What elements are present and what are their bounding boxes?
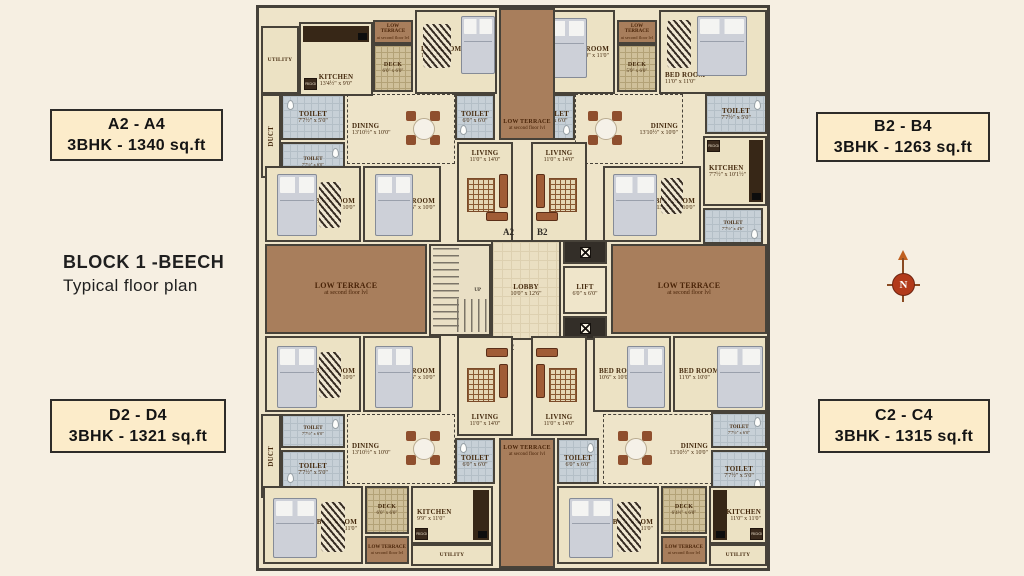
lift-shaft-top — [563, 240, 607, 264]
sofa-icon — [486, 212, 508, 221]
room-dim: 6'0" x 6'0" — [377, 511, 398, 517]
unit-spec-b: 3BHK - 1263 sq.ft — [834, 138, 972, 158]
room-name: DINING — [352, 122, 379, 130]
room-name: DECK — [628, 62, 646, 69]
north-compass: N — [886, 250, 922, 308]
room-a-toilet3: TOILET6'0" x 6'0" — [455, 94, 495, 140]
room-a-bed2: BED ROOM13'0" x 10'0" — [265, 166, 361, 242]
room-dim: 6'0" x 6'0" — [565, 462, 590, 469]
room-c-bed1: BED ROOM10'6" x 10'0" — [593, 336, 671, 412]
rug-icon — [319, 182, 341, 228]
room-dim: 11'0" x 14'0" — [544, 157, 575, 164]
room-name: LIFT — [576, 283, 593, 291]
fridge-icon: FRIDGE — [707, 140, 720, 152]
unit-range-b: B2 - B4 — [874, 117, 932, 137]
terrace-d-small: LOW TERRACEat second floor lvl — [365, 536, 409, 564]
unit-spec-c: 3BHK - 1315 sq.ft — [835, 427, 973, 447]
kitchen-counter-icon — [713, 490, 727, 540]
room-name: TOILET — [299, 462, 327, 470]
toilet-fixture-icon — [287, 100, 294, 110]
lobby: LOBBY10'0" x 12'6" — [491, 240, 561, 340]
kitchen-counter-icon — [473, 490, 489, 540]
sofa-icon — [499, 174, 508, 208]
rug-icon — [423, 24, 451, 68]
rug-icon — [467, 368, 495, 402]
room-d-toilet2: TOILET7'7½" x 5'0" — [281, 450, 345, 488]
terrace-name: LOW TERRACE — [658, 281, 721, 290]
lift-shaft-x-icon — [580, 323, 591, 334]
toilet-fixture-icon — [563, 125, 570, 135]
sofa-icon — [536, 212, 558, 221]
room-b-kitchen: FRIDGE KITCHEN7'7½" x 10'1½" — [703, 136, 767, 206]
bed-icon — [375, 174, 413, 236]
fridge-icon: FRIDGE — [304, 78, 317, 90]
stairs-icon: UP — [429, 244, 491, 336]
unit-range-d: D2 - D4 — [109, 406, 167, 426]
room-a-bed3: BED ROOM10'6" x 10'0" — [363, 166, 441, 242]
room-name: TOILET — [461, 110, 489, 118]
room-name: KITCHEN — [319, 73, 353, 81]
room-name: LIVING — [472, 413, 499, 421]
compass-n-label: N — [900, 279, 908, 291]
room-name: TOILET — [461, 454, 489, 462]
room-name: UTILITY — [268, 57, 293, 63]
terrace-sub: at second floor lvl — [667, 290, 711, 297]
room-name: BED ROOM — [679, 367, 719, 375]
terrace-b-small: LOW TERRACEat second floor lvl — [617, 20, 657, 44]
room-dim: 7'7½" x 5'0" — [724, 473, 754, 480]
room-name: DUCT — [267, 126, 275, 147]
room-name: TOILET — [722, 107, 750, 115]
room-c-utility: UTILITY — [709, 544, 767, 566]
toilet-fixture-icon — [460, 125, 467, 135]
unit-label-box-a: A2 - A4 3BHK - 1340 sq.ft — [50, 109, 223, 161]
room-b-toilet2: TOILET7'7½" x 5'0" — [705, 94, 767, 134]
terrace-name: LOW TERRACE — [503, 445, 551, 452]
bed-icon — [569, 498, 613, 558]
terrace-sub: at second floor lvl — [377, 35, 410, 40]
room-d-toilet1: TOILET7'7½" x 6'0" — [281, 414, 345, 448]
room-c-dining: DINING13'10½" x 10'0" — [603, 414, 713, 484]
block-title: BLOCK 1 -BEECH Typical floor plan — [63, 250, 224, 298]
room-dim: 7'7½" x 10'1½" — [709, 172, 746, 179]
room-name: KITCHEN — [417, 508, 451, 516]
room-name: DECK — [378, 504, 396, 511]
dining-set-icon — [406, 111, 442, 147]
lift-shaft-x-icon — [580, 247, 591, 258]
room-name: TOILET — [299, 110, 327, 118]
bed-icon — [277, 346, 317, 408]
room-d-dining: DINING13'10½" x 10'0" — [347, 414, 455, 484]
room-d-kitchen: FRIDGE KITCHEN9'9" x 11'0" — [411, 486, 493, 544]
terrace-sub: at second floor lvl — [668, 550, 701, 555]
room-dim: 11'0" x 14'0" — [544, 421, 575, 428]
sofa-icon — [536, 174, 545, 208]
floor-plan: UTILITY FRIDGE KITCHEN13'4½" x 9'0" LOW … — [256, 5, 770, 571]
room-c-toilet2: TOILET7'7½" x 6'0" — [711, 412, 767, 448]
toilet-fixture-icon — [332, 419, 339, 429]
toilet-fixture-icon — [754, 100, 761, 110]
room-dim: 7'7½" x 6'0" — [302, 431, 324, 436]
dining-set-icon — [618, 431, 654, 467]
lift: LIFT6'0" x 6'0" — [563, 266, 607, 314]
room-a-kitchen: FRIDGE KITCHEN13'4½" x 9'0" — [299, 22, 373, 96]
terrace-sub: at second floor lvl — [509, 452, 545, 458]
compass-circle: N — [892, 273, 915, 296]
room-dim: 13'10½" x 10'0" — [669, 450, 708, 457]
room-d-bed1: BED ROOM13'0" x 10'0" — [265, 336, 361, 412]
unit-spec-a: 3BHK - 1340 sq.ft — [67, 136, 205, 156]
toilet-fixture-icon — [332, 148, 339, 158]
room-b-toilet3: TOILET7'7½" x 4'6" — [703, 208, 763, 244]
room-dim: 6'0" x 6'0" — [383, 69, 404, 75]
room-dim: 13'10½" x 10'0" — [639, 130, 678, 137]
room-d-utility: UTILITY — [411, 544, 493, 566]
room-b-dining: DINING13'10½" x 10'0" — [575, 94, 683, 164]
sofa-icon — [536, 364, 545, 398]
room-d-deck: DECK6'0" x 6'0" — [365, 486, 409, 534]
terrace-bottom: LOW TERRACEat second floor lvl — [499, 438, 555, 568]
stairs-up-label: UP — [474, 288, 481, 293]
room-dim: 13'10½" x 10'0" — [352, 450, 391, 457]
room-dim: 6'0" x 6'0" — [462, 118, 487, 125]
rug-icon — [549, 178, 577, 212]
terrace-a-small: LOW TERRACEat second floor lvl — [373, 20, 413, 44]
terrace-sub: at second floor lvl — [324, 290, 368, 297]
sofa-icon — [499, 364, 508, 398]
terrace-sub: at second floor lvl — [509, 126, 545, 132]
room-dim: 7'7½" x 4'6" — [722, 226, 744, 231]
room-name: DECK — [675, 504, 693, 511]
room-a-dining: DINING13'10½" x 10'0" — [347, 94, 455, 164]
fridge-icon: FRIDGE — [415, 528, 428, 540]
floor-plan-page: A2 - A4 3BHK - 1340 sq.ft B2 - B4 3BHK -… — [0, 0, 1024, 576]
rug-icon — [549, 368, 577, 402]
room-dim: 11'0" x 10'0" — [679, 375, 710, 382]
bed-icon — [697, 16, 747, 76]
terrace-right: LOW TERRACEat second floor lvl — [611, 244, 767, 334]
room-name: DUCT — [267, 446, 275, 467]
room-b-deck: DECK5'9" x 6'0" — [617, 44, 657, 92]
bed-icon — [461, 16, 495, 74]
rug-icon — [467, 178, 495, 212]
terrace-sub: at second floor lvl — [621, 35, 654, 40]
room-c-toilet1: TOILET6'0" x 6'0" — [557, 438, 599, 484]
room-d-toilet3: TOILET6'0" x 6'0" — [455, 438, 495, 484]
room-dim: 13'4½" x 9'0" — [320, 81, 353, 88]
sofa-icon — [486, 348, 508, 357]
room-c-deck: DECK6'4½" x 6'0" — [661, 486, 707, 534]
room-dim: 6'4½" x 6'0" — [672, 511, 697, 517]
rug-icon — [661, 178, 683, 214]
toilet-fixture-icon — [287, 473, 294, 483]
block-title-line1: BLOCK 1 -BEECH — [63, 250, 224, 274]
terrace-name: LOW TERRACE — [619, 24, 655, 36]
toilet-fixture-icon — [751, 229, 758, 239]
room-dim: 7'7½" x 5'0" — [721, 115, 751, 122]
bed-icon — [627, 346, 665, 408]
room-name: DINING — [681, 442, 708, 450]
room-dim: 7'7½" x 6'0" — [728, 430, 750, 435]
unit-label-box-d: D2 - D4 3BHK - 1321 sq.ft — [50, 399, 226, 453]
rug-icon — [617, 502, 641, 552]
room-d-bed2: BED ROOM10'6" x 10'0" — [363, 336, 441, 412]
unit-range-c: C2 - C4 — [875, 406, 933, 426]
kitchen-counter-icon — [749, 140, 763, 202]
room-dim: 9'9" x 11'0" — [417, 516, 445, 523]
dining-set-icon — [588, 111, 624, 147]
room-dim: 10'6" x 10'0" — [599, 375, 630, 382]
terrace-top: LOW TERRACEat second floor lvl — [499, 8, 555, 140]
bed-icon — [273, 498, 317, 558]
room-c-bed3: BED ROOM13'0" x 11'0" — [557, 486, 659, 564]
room-dim: 7'7½" x 5'0" — [298, 470, 328, 477]
unit-label-box-c: C2 - C4 3BHK - 1315 sq.ft — [818, 399, 990, 453]
bed-icon — [375, 346, 413, 408]
terrace-name: LOW TERRACE — [375, 24, 411, 36]
terrace-c-small: LOW TERRACEat second floor lvl — [661, 536, 707, 564]
bed-icon — [613, 174, 657, 236]
dining-set-icon — [406, 431, 442, 467]
fridge-icon: FRIDGE — [750, 528, 763, 540]
kitchen-counter-icon — [303, 26, 369, 42]
room-name: DINING — [352, 442, 379, 450]
room-name: LIVING — [546, 149, 573, 157]
room-name: LOBBY — [513, 283, 539, 291]
sofa-icon — [536, 348, 558, 357]
terrace-name: LOW TERRACE — [503, 119, 551, 126]
room-d-living: LIVING11'0" x 14'0" — [457, 336, 513, 436]
room-a-utility: UTILITY — [261, 26, 299, 94]
room-dim: 11'0" x 14'0" — [470, 421, 501, 428]
room-dim: 5'9" x 6'0" — [627, 69, 648, 75]
room-b-bed2: BED ROOM11'0" x 11'0" — [659, 10, 767, 94]
room-dim: 7'7½" x 5'0" — [298, 118, 328, 125]
unit-label-box-b: B2 - B4 3BHK - 1263 sq.ft — [816, 112, 990, 162]
rug-icon — [319, 352, 341, 398]
room-name: LIVING — [546, 413, 573, 421]
room-b-bed3: BED ROOM13'10½" x 10'0" — [603, 166, 701, 242]
room-name: DECK — [384, 62, 402, 69]
room-name: DINING — [651, 122, 678, 130]
rug-icon — [321, 502, 345, 552]
room-name: LIVING — [472, 149, 499, 157]
room-dim: 6'0" x 6'0" — [462, 462, 487, 469]
room-c-bed2: BED ROOM11'0" x 10'0" — [673, 336, 767, 412]
unit-marker-a2: A2 — [503, 227, 514, 237]
room-name: KITCHEN — [727, 508, 761, 516]
room-dim: 6'0" x 6'0" — [572, 291, 597, 298]
room-dim: 13'10½" x 10'0" — [352, 130, 391, 137]
room-a-deck: DECK6'0" x 6'0" — [373, 44, 413, 92]
room-dim: 11'0" x 14'0" — [470, 157, 501, 164]
unit-spec-d: 3BHK - 1321 sq.ft — [69, 427, 207, 447]
bed-icon — [717, 346, 763, 408]
block-title-line2: Typical floor plan — [63, 274, 224, 298]
room-c-living: LIVING11'0" x 14'0" — [531, 336, 587, 436]
room-dim: 11'0" x 11'0" — [730, 516, 761, 523]
toilet-fixture-icon — [754, 417, 761, 427]
room-a-toilet1: TOILET7'7½" x 5'0" — [281, 94, 345, 140]
room-c-kitchen: FRIDGE KITCHEN11'0" x 11'0" — [709, 486, 767, 544]
toilet-fixture-icon — [587, 443, 594, 453]
terrace-name: LOW TERRACE — [315, 281, 378, 290]
room-d-bed3: BED ROOM13'0" x 11'0" — [263, 486, 363, 564]
terrace-sub: at second floor lvl — [371, 550, 404, 555]
unit-range-a: A2 - A4 — [108, 115, 165, 135]
room-name: UTILITY — [726, 552, 751, 558]
room-name: KITCHEN — [709, 164, 743, 172]
unit-marker-b2: B2 — [537, 227, 548, 237]
bed-icon — [277, 174, 317, 236]
terrace-left: LOW TERRACEat second floor lvl — [265, 244, 427, 334]
room-dim: 10'0" x 12'6" — [510, 291, 541, 298]
room-dim: 11'0" x 11'0" — [665, 79, 696, 86]
rug-icon — [667, 20, 691, 68]
room-a-bed1: BED ROOM13'0" x 11'0" — [415, 10, 497, 94]
room-name: UTILITY — [440, 552, 465, 558]
toilet-fixture-icon — [460, 443, 467, 453]
room-name: TOILET — [725, 465, 753, 473]
room-name: TOILET — [564, 454, 592, 462]
